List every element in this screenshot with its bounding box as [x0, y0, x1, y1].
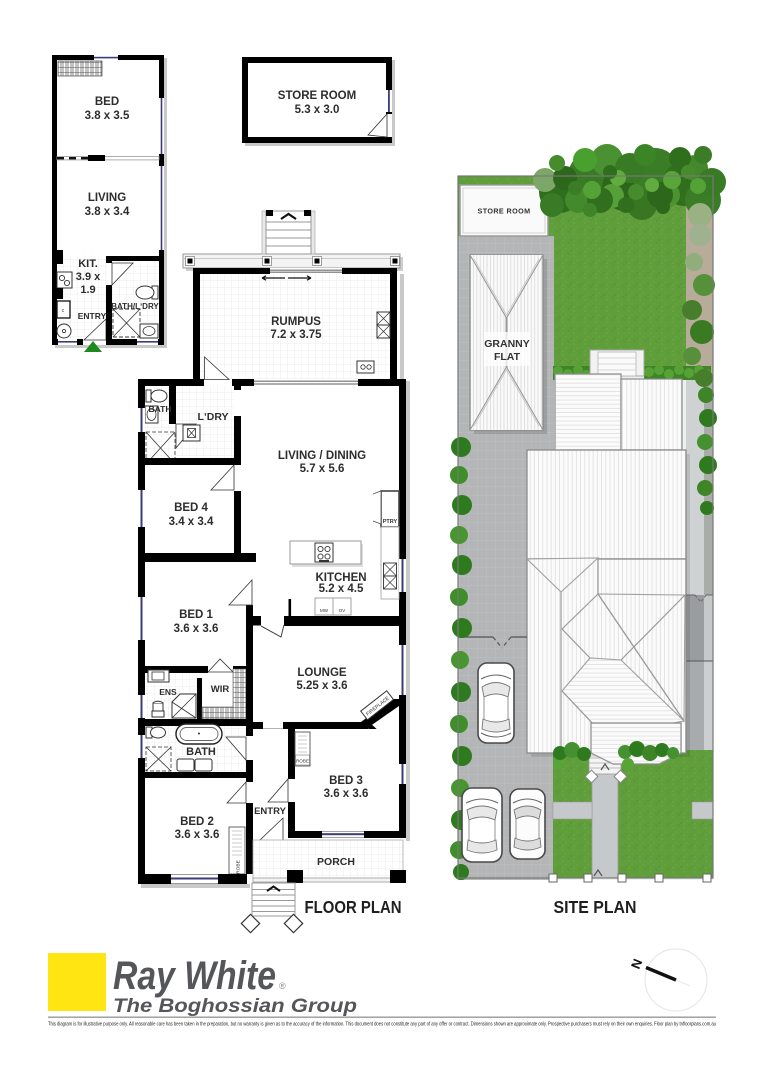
svg-text:LIVING: LIVING [88, 192, 126, 204]
svg-text:5.25 x 3.6: 5.25 x 3.6 [296, 680, 347, 692]
svg-text:LOUNGE: LOUNGE [297, 667, 347, 679]
svg-text:3.8 x 3.5: 3.8 x 3.5 [85, 110, 130, 122]
svg-text:ENS: ENS [159, 687, 177, 697]
svg-text:SITE PLAN: SITE PLAN [554, 897, 637, 917]
svg-text:GRANNY: GRANNY [484, 338, 530, 350]
svg-text:ROBE: ROBE [296, 759, 309, 764]
svg-text:ENTRY: ENTRY [78, 311, 107, 321]
svg-text:RUMPUS: RUMPUS [271, 316, 321, 328]
svg-text:ENTRY: ENTRY [254, 806, 287, 817]
svg-text:PORCH: PORCH [317, 856, 355, 868]
svg-text:ROBE: ROBE [236, 860, 242, 874]
svg-text:3.4 x 3.4: 3.4 x 3.4 [169, 516, 214, 528]
svg-text:FLAT: FLAT [494, 351, 521, 363]
svg-text:BED 1: BED 1 [179, 609, 213, 621]
svg-text:®: ® [279, 981, 286, 991]
svg-text:LIVING / DINING: LIVING / DINING [278, 450, 366, 462]
svg-text:BED 2: BED 2 [180, 816, 214, 828]
svg-text:7.2 x 3.75: 7.2 x 3.75 [270, 329, 322, 341]
svg-text:3.8 x 3.4: 3.8 x 3.4 [85, 206, 130, 218]
svg-text:1.9: 1.9 [80, 284, 95, 296]
svg-text:STORE ROOM: STORE ROOM [278, 90, 356, 102]
svg-text:BATH: BATH [186, 746, 216, 758]
svg-text:FLOOR PLAN: FLOOR PLAN [305, 897, 402, 917]
svg-text:5.3 x 3.0: 5.3 x 3.0 [295, 104, 340, 116]
svg-text:3.6 x 3.6: 3.6 x 3.6 [324, 788, 369, 800]
svg-text:MW: MW [320, 608, 329, 613]
svg-text:Ray White: Ray White [113, 954, 276, 998]
svg-text:The Boghossian Group: The Boghossian Group [113, 995, 357, 1017]
svg-text:WIR: WIR [211, 684, 230, 695]
svg-text:BATH/LʼDRY: BATH/LʼDRY [111, 302, 159, 311]
svg-text:OV: OV [339, 608, 346, 613]
svg-text:3.6 x 3.6: 3.6 x 3.6 [175, 829, 220, 841]
svg-text:BED 4: BED 4 [174, 502, 208, 514]
svg-text:KIT.: KIT. [78, 258, 98, 270]
svg-text:5.7 x 5.6: 5.7 x 5.6 [300, 463, 345, 475]
svg-text:BATH: BATH [149, 404, 172, 414]
svg-text:BED: BED [95, 96, 119, 108]
svg-text:LʼDRY: LʼDRY [197, 411, 228, 423]
svg-text:BED 3: BED 3 [329, 775, 363, 787]
svg-text:3.9 x: 3.9 x [76, 271, 101, 283]
svg-text:3.6 x 3.6: 3.6 x 3.6 [174, 623, 219, 635]
svg-text:This diagram is for illustrati: This diagram is for illustrative purpose… [48, 1022, 716, 1028]
svg-text:PTRY: PTRY [383, 519, 398, 525]
svg-text:5.2 x 4.5: 5.2 x 4.5 [319, 583, 364, 595]
svg-text:STORE ROOM: STORE ROOM [478, 207, 531, 216]
